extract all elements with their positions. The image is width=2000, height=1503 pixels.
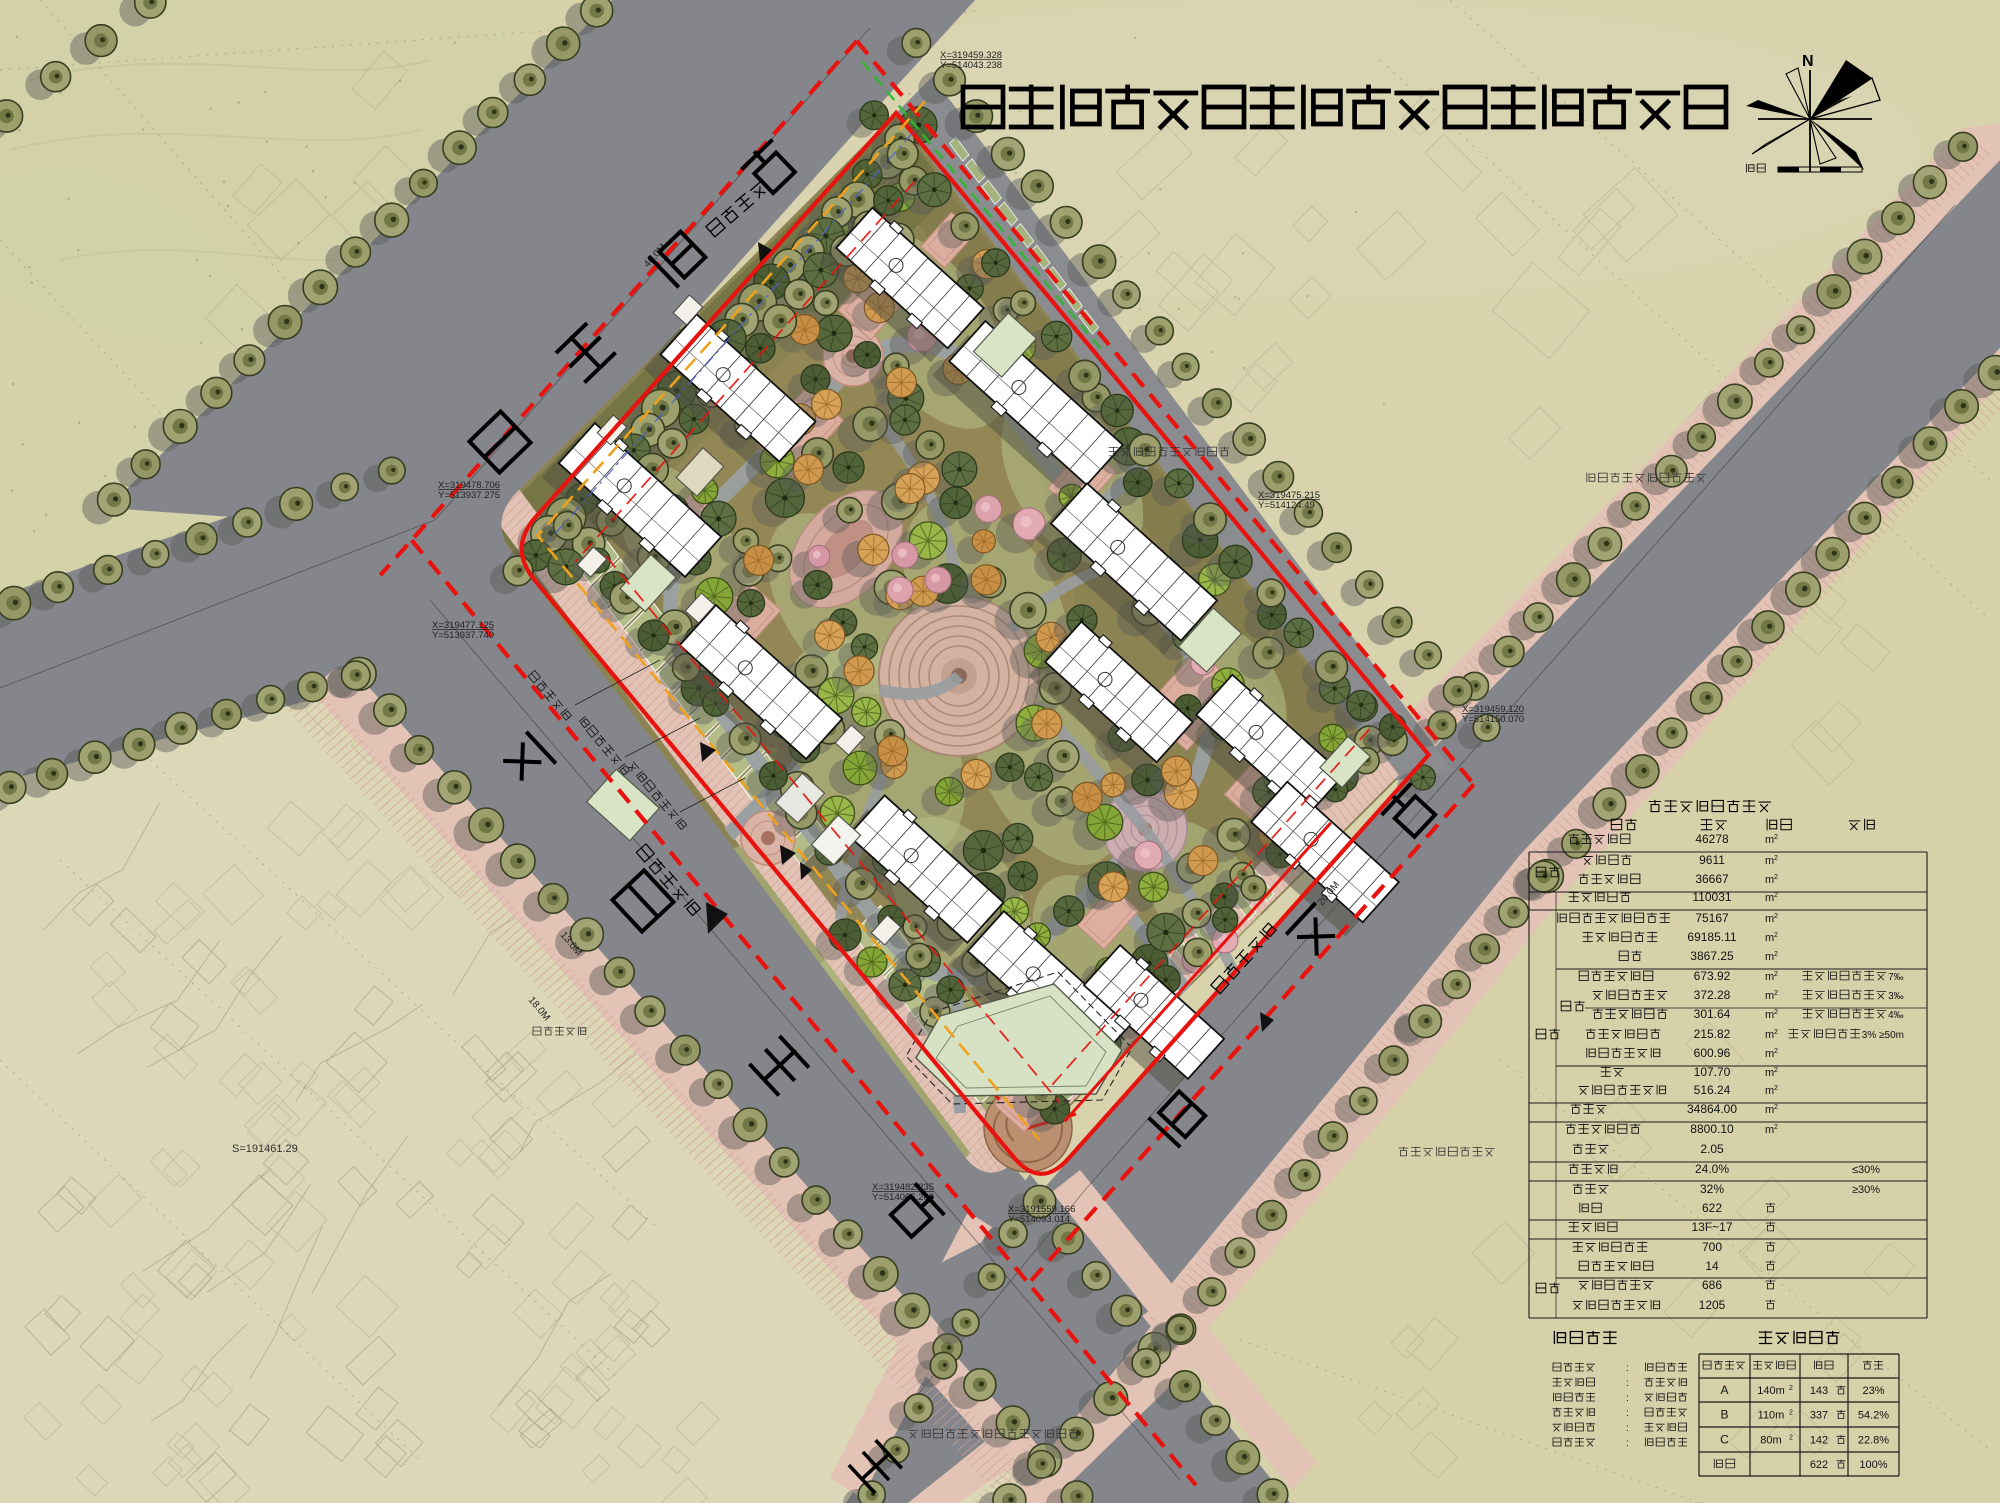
svg-text:2: 2	[1774, 1009, 1778, 1016]
svg-text:Y=514093.014: Y=514093.014	[1008, 1214, 1070, 1225]
svg-text:140m: 140m	[1757, 1385, 1785, 1397]
svg-text:54.2%: 54.2%	[1858, 1410, 1889, 1422]
svg-text:516.24: 516.24	[1694, 1083, 1731, 1097]
svg-text:2: 2	[1774, 971, 1778, 978]
svg-text:14: 14	[1705, 1259, 1719, 1273]
svg-text:337: 337	[1810, 1410, 1828, 1422]
svg-text:686: 686	[1702, 1278, 1722, 1292]
svg-text:2: 2	[1774, 1104, 1778, 1111]
svg-text:7‰: 7‰	[1888, 972, 1904, 983]
svg-text:m: m	[1765, 1009, 1774, 1021]
svg-text:24.0%: 24.0%	[1695, 1162, 1729, 1176]
svg-text:m: m	[1765, 951, 1774, 963]
svg-text:S=191461.29: S=191461.29	[232, 1143, 298, 1155]
svg-text:2: 2	[1774, 1085, 1778, 1092]
svg-text:600.96: 600.96	[1694, 1046, 1731, 1060]
svg-text:m: m	[1765, 892, 1774, 904]
svg-text:Y=513937.740: Y=513937.740	[432, 630, 494, 641]
svg-text:2: 2	[1774, 1029, 1778, 1036]
svg-text:80m: 80m	[1760, 1435, 1781, 1447]
svg-text:m: m	[1765, 990, 1774, 1002]
svg-text:≤30%: ≤30%	[1852, 1164, 1880, 1176]
svg-text:2: 2	[1774, 874, 1778, 881]
svg-text:46278: 46278	[1695, 832, 1729, 846]
svg-text:69185.11: 69185.11	[1687, 930, 1736, 944]
svg-text:4‰: 4‰	[1888, 1010, 1904, 1021]
svg-text::: :	[1626, 1438, 1629, 1449]
svg-text:2: 2	[1774, 1048, 1778, 1055]
svg-text:3867.25: 3867.25	[1690, 949, 1734, 963]
svg-text:m: m	[1765, 971, 1774, 983]
svg-text:m: m	[1765, 1124, 1774, 1136]
svg-text:23%: 23%	[1862, 1385, 1884, 1397]
svg-text:2: 2	[1774, 932, 1778, 939]
svg-text:1205: 1205	[1699, 1298, 1726, 1312]
svg-text:32%: 32%	[1700, 1182, 1724, 1196]
svg-text:2: 2	[1789, 1410, 1793, 1417]
svg-text:m: m	[1765, 855, 1774, 867]
svg-text:3‰: 3‰	[1888, 991, 1904, 1002]
svg-text:622: 622	[1702, 1201, 1722, 1215]
svg-text:m: m	[1765, 932, 1774, 944]
svg-text::: :	[1626, 1393, 1629, 1404]
svg-text:m: m	[1765, 1067, 1774, 1079]
svg-text::: :	[1626, 1378, 1629, 1389]
svg-text:215.82: 215.82	[1694, 1027, 1731, 1041]
svg-text::: :	[1626, 1408, 1629, 1419]
svg-text:2: 2	[1774, 990, 1778, 997]
svg-text:2: 2	[1774, 1124, 1778, 1131]
svg-text:100%: 100%	[1859, 1459, 1887, 1471]
svg-text:110m: 110m	[1758, 1410, 1785, 1422]
svg-text:2: 2	[1789, 1435, 1793, 1442]
svg-text:301.64: 301.64	[1694, 1007, 1731, 1021]
svg-text::: :	[1626, 1423, 1629, 1434]
svg-text:110031: 110031	[1692, 890, 1731, 904]
svg-text:2: 2	[1774, 834, 1778, 841]
svg-text:Y=514043.238: Y=514043.238	[940, 60, 1002, 71]
svg-text:700: 700	[1702, 1240, 1722, 1254]
svg-text:3% ≥50m: 3% ≥50m	[1862, 1030, 1904, 1041]
svg-text:N: N	[1802, 53, 1814, 70]
svg-text:13F~17: 13F~17	[1691, 1220, 1732, 1234]
svg-text:C: C	[1720, 1433, 1729, 1447]
svg-text:m: m	[1765, 1085, 1774, 1097]
svg-text:673.92: 673.92	[1694, 969, 1731, 983]
svg-text:m: m	[1765, 834, 1774, 846]
svg-text:2: 2	[1774, 951, 1778, 958]
svg-text:9611: 9611	[1699, 853, 1725, 867]
svg-text:Y=514124.49: Y=514124.49	[1258, 500, 1315, 511]
svg-text:2: 2	[1774, 1067, 1778, 1074]
svg-text:8800.10: 8800.10	[1690, 1122, 1734, 1136]
svg-text:≥30%: ≥30%	[1852, 1184, 1880, 1196]
svg-text:2: 2	[1789, 1385, 1793, 1392]
svg-text:2: 2	[1774, 913, 1778, 920]
svg-text:22.8%: 22.8%	[1858, 1435, 1889, 1447]
svg-text:B: B	[1720, 1408, 1728, 1422]
svg-text:372.28: 372.28	[1694, 988, 1731, 1002]
svg-text:2: 2	[1774, 855, 1778, 862]
svg-text:m: m	[1765, 1029, 1774, 1041]
svg-text:Y=513937.275: Y=513937.275	[438, 490, 500, 501]
svg-text:m: m	[1765, 874, 1774, 886]
svg-text:m: m	[1765, 913, 1774, 925]
svg-text:143: 143	[1810, 1385, 1828, 1397]
svg-text:36667: 36667	[1695, 872, 1729, 886]
svg-text:Y=514150.070: Y=514150.070	[1462, 714, 1524, 725]
svg-text:107.70: 107.70	[1694, 1065, 1731, 1079]
svg-text:622: 622	[1810, 1459, 1828, 1471]
svg-text:142: 142	[1810, 1435, 1828, 1447]
svg-text:75167: 75167	[1695, 911, 1729, 925]
svg-text::: :	[1626, 1363, 1629, 1374]
svg-text:m: m	[1765, 1104, 1774, 1116]
svg-text:2: 2	[1774, 892, 1778, 899]
svg-text:34864.00: 34864.00	[1687, 1102, 1737, 1116]
svg-text:m: m	[1765, 1048, 1774, 1060]
svg-text:A: A	[1720, 1383, 1728, 1397]
svg-text:2.05: 2.05	[1700, 1142, 1724, 1156]
